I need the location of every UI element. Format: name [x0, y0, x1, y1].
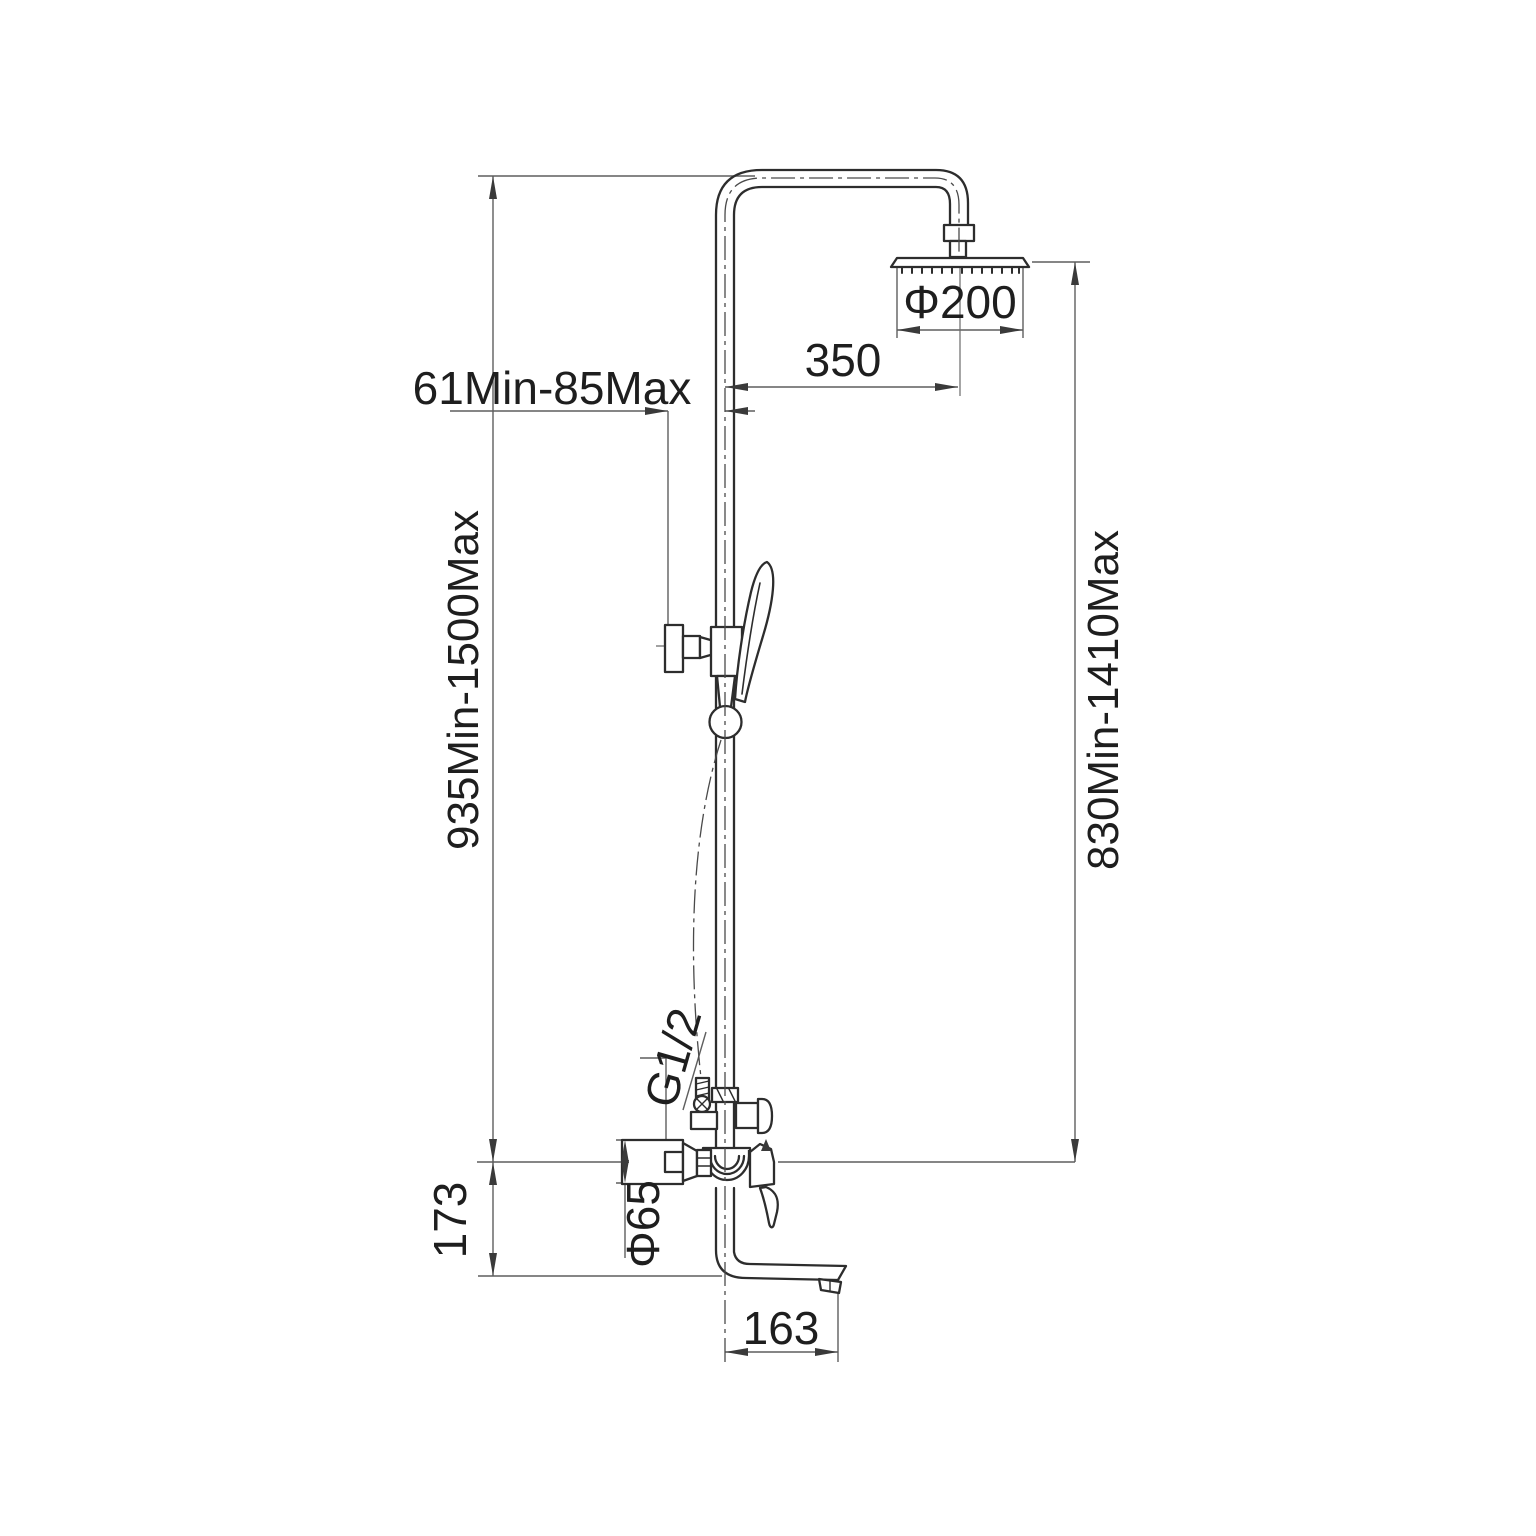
- shower-column-technical-drawing: 350 Φ200 61Min-85Max 935Min-1500Max 830M…: [0, 0, 1536, 1536]
- escutcheon-cone: [683, 1143, 697, 1181]
- hand-shower-handle-cone: [717, 676, 735, 707]
- diverter-cap: [758, 1099, 772, 1133]
- label-mixer-to-spout-drop: 173: [424, 1182, 476, 1259]
- wall-bracket-flange: [665, 625, 683, 672]
- overhead-shower-head: [891, 258, 1029, 267]
- label-escutcheon-diameter: Φ65: [617, 1180, 669, 1268]
- spout-inner: [734, 1188, 846, 1280]
- escutcheon-nut: [697, 1150, 711, 1176]
- escutcheon-neck: [665, 1152, 683, 1172]
- diverter-body: [736, 1103, 758, 1128]
- mixer-handle-lever: [760, 1187, 778, 1227]
- wall-bracket-stem: [683, 636, 700, 658]
- label-arm-reach: 350: [805, 334, 882, 386]
- drawing-canvas: 350 Φ200 61Min-85Max 935Min-1500Max 830M…: [0, 0, 1536, 1536]
- label-head-to-mixer-height: 830Min-1410Max: [1079, 530, 1128, 870]
- label-spout-reach: 163: [743, 1302, 820, 1354]
- label-total-height: 935Min-1500Max: [439, 510, 488, 850]
- label-wall-clearance: 61Min-85Max: [413, 362, 692, 414]
- arrowheads: [489, 176, 1079, 1356]
- hose-valve-body: [691, 1112, 717, 1129]
- label-head-diameter: Φ200: [903, 276, 1016, 328]
- head-connector-stem: [950, 241, 966, 257]
